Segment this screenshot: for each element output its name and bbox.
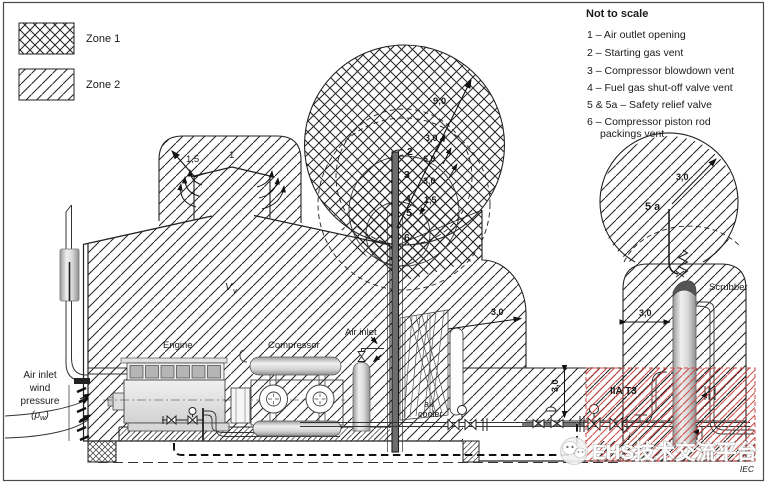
svg-text:3,0: 3,0 [423,176,436,186]
svg-text:1 – Air outlet opening: 1 – Air outlet opening [587,29,686,41]
svg-text:EHS技术交流平台: EHS技术交流平台 [592,440,757,464]
svg-text:5 & 5a – Safety relief valve: 5 & 5a – Safety relief valve [587,99,712,111]
svg-text:IEC: IEC [740,464,755,474]
svg-text:3,0: 3,0 [639,308,652,318]
svg-text:wind: wind [29,383,51,394]
svg-text:5 a: 5 a [645,201,661,213]
svg-text:3,0: 3,0 [550,379,560,392]
svg-text:Engine: Engine [163,340,193,351]
svg-text:1: 1 [229,150,234,161]
svg-text:6 – Compressor piston rod: 6 – Compressor piston rod [587,116,711,128]
svg-text:Not to scale: Not to scale [586,8,648,20]
svg-text:cooler: cooler [418,409,443,419]
svg-text:V: V [225,281,233,293]
svg-text:Scrubber: Scrubber [709,282,748,293]
svg-text:3 – Compressor blowdown vent: 3 – Compressor blowdown vent [587,65,734,77]
svg-text:1,5: 1,5 [424,195,437,205]
svg-text:1,5: 1,5 [186,154,199,165]
svg-text:2: 2 [407,146,413,158]
svg-text:2 – Starting gas vent: 2 – Starting gas vent [587,47,683,59]
svg-text:5: 5 [406,207,412,219]
svg-text:Zone 1: Zone 1 [86,33,120,45]
svg-text:9,0: 9,0 [433,96,446,107]
svg-text:3: 3 [404,169,410,181]
svg-text:3,0: 3,0 [676,172,689,182]
svg-text:3,0: 3,0 [425,133,438,143]
svg-text:6,0: 6,0 [423,154,436,164]
svg-text:6: 6 [404,232,410,244]
svg-text:air: air [424,399,434,409]
svg-text:Air inlet: Air inlet [345,327,377,338]
svg-text:4: 4 [405,193,411,205]
svg-text:Compressor: Compressor [268,340,320,351]
svg-text:Zone 2: Zone 2 [86,79,120,91]
svg-text:IIA T3: IIA T3 [610,386,637,397]
svg-text:4 – Fuel gas shut-off valve ve: 4 – Fuel gas shut-off valve vent [587,82,733,94]
svg-text:3,0: 3,0 [491,307,504,317]
svg-text:Air inlet: Air inlet [23,370,57,381]
svg-text:pressure: pressure [21,396,60,407]
